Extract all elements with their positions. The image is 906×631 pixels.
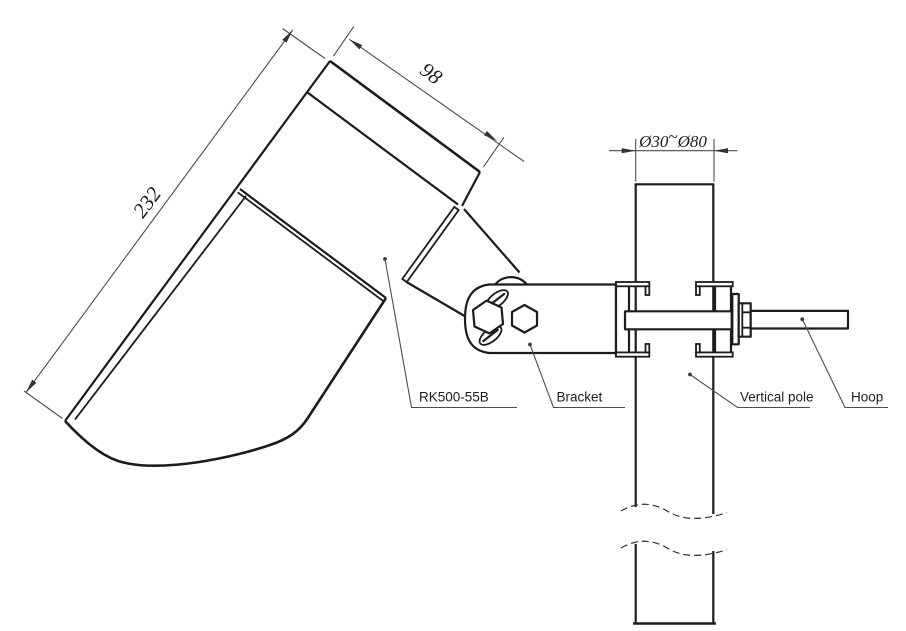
dim232-line	[26, 30, 293, 393]
mounting-diagram: 232 98 Ø30~Ø80 RK500-55B Bracket Vertica…	[0, 0, 906, 631]
dim98-ext-line-left	[333, 26, 353, 56]
flange-bar-top-left	[616, 282, 649, 286]
nut-outline	[739, 303, 751, 336]
pole-break-line-lower	[621, 541, 727, 555]
sensor-bottom-outline	[65, 298, 386, 466]
label-pole: Vertical pole	[740, 390, 814, 405]
dimpole-text-tilde: ~	[668, 127, 677, 146]
sensor-cap-ring-line	[308, 93, 459, 205]
dim98-arrow-right	[484, 131, 497, 141]
arm-collar-strip	[402, 207, 458, 282]
dimpole-text-p2: Ø80	[677, 132, 708, 151]
dim98-arrow-left	[349, 39, 362, 49]
vertical-pole	[621, 184, 727, 623]
arm-lower-line	[407, 282, 469, 318]
diagram-svg: 232 98 Ø30~Ø80 RK500-55B Bracket Vertica…	[0, 0, 906, 631]
bracket-pivot-boss-arc	[495, 277, 527, 284]
pole-break-line-upper	[621, 504, 727, 518]
bracket	[465, 277, 616, 353]
flange-bar-bottom-right	[696, 352, 733, 356]
bracket-hex-hole	[512, 305, 537, 333]
label-bracket: Bracket	[557, 390, 603, 405]
flange-bar-top-right	[696, 282, 733, 286]
clamp-bolt-bar	[625, 311, 732, 329]
dim98-ext-line-right	[483, 137, 503, 167]
flange-hook-bottom-right	[696, 344, 700, 352]
dim232-text: 232	[128, 182, 166, 222]
flange-hook-bottom-left	[646, 344, 650, 352]
hoop-clamp	[616, 282, 848, 357]
flange-bar-bottom-left	[616, 352, 649, 356]
dimpole-arrow-right	[714, 148, 728, 153]
dimension-pole-diameter: Ø30~Ø80	[609, 127, 738, 182]
dim98-text: 98	[416, 58, 448, 90]
sensor-right-top-edge	[462, 172, 480, 206]
arm-upper-line	[464, 209, 520, 273]
leader-pole: Vertical pole	[688, 373, 813, 408]
dimpole-arrow-left	[622, 148, 636, 153]
flange-hook-top-left	[646, 286, 650, 295]
sensor-shoulder-line-2	[238, 192, 384, 301]
sensor-left-silhouette	[65, 61, 330, 421]
dim232-ext-line-top	[283, 29, 326, 59]
sensor-left-chamfer-line	[75, 196, 246, 420]
dim232-arrow-bottom	[26, 380, 36, 393]
dimpole-text-p1: Ø30	[638, 132, 669, 151]
label-hoop: Hoop	[851, 390, 883, 405]
hoop-threaded-rod	[751, 311, 848, 329]
dim232-ext-line-bottom	[24, 391, 63, 419]
dimpole-text: Ø30~Ø80	[638, 127, 707, 151]
flange-hook-top-right	[696, 286, 700, 295]
sensor-shoulder-line	[240, 189, 386, 298]
leader-hoop-dot	[800, 317, 804, 321]
dimension-width-98: 98	[333, 26, 524, 167]
bolt-nut	[739, 303, 751, 336]
label-sensor: RK500-55B	[419, 390, 489, 405]
